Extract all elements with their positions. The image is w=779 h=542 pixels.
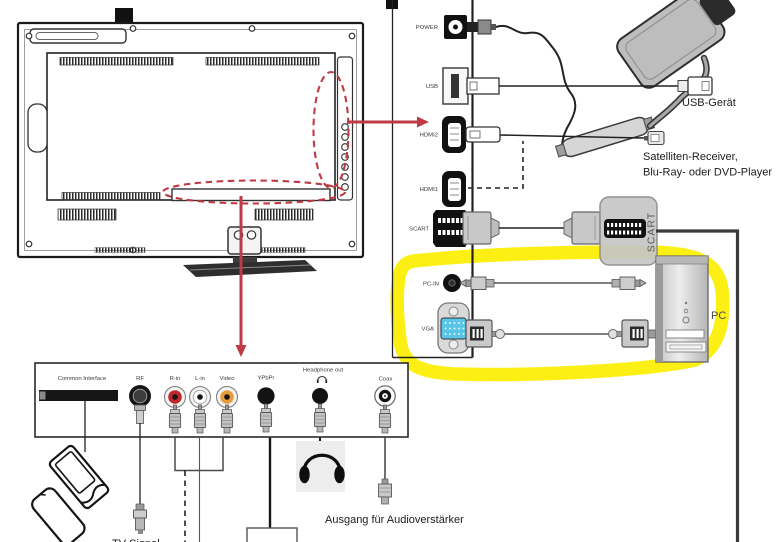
- bottom-port-panel: Common Interface RF R-in L-in Video YPbP…: [35, 363, 408, 437]
- scart-adapter-label: SCART: [646, 212, 658, 252]
- power-port: [444, 15, 467, 39]
- component-device-box: [247, 528, 297, 542]
- hdmi-source-caption-line2: Blu-Ray- oder DVD-Player: [643, 167, 772, 179]
- hdmi1-port: [442, 171, 466, 207]
- bottom-connector-recess: [172, 189, 330, 201]
- speaker-grille: [58, 209, 116, 220]
- vent-strip: [255, 248, 305, 253]
- coax-cable-plug: [379, 479, 392, 504]
- tv-back-panel: [47, 53, 335, 200]
- r-in-label: R-in: [170, 376, 181, 382]
- ypbpr-port: [257, 387, 274, 404]
- usb-port-label: USB: [426, 84, 438, 90]
- common-interface-slot: [39, 390, 118, 401]
- tv-stand: [183, 257, 317, 277]
- coax-port: [375, 386, 395, 406]
- usb-connection: [467, 77, 712, 95]
- l-in-port: [190, 387, 211, 408]
- scart-port-label: SCART: [409, 227, 429, 233]
- pc-audio-connection: [460, 277, 646, 290]
- scart-plug: [463, 212, 499, 244]
- hdmi-plug-detail: [470, 131, 480, 138]
- audio-plug-pc-end: [612, 277, 646, 290]
- usb-device-caption: USB-Gerät: [682, 97, 736, 109]
- hdmi2-port-label: HDMI2: [420, 133, 438, 139]
- hdmi2-port: [442, 116, 466, 153]
- rf-label: RF: [136, 376, 144, 382]
- mount-tab: [115, 8, 133, 24]
- vent-grille: [60, 58, 173, 66]
- pc-tower: [656, 256, 708, 362]
- video-port: [217, 387, 238, 408]
- common-interface-label: Common Interface: [58, 376, 107, 382]
- scart-adapter-plug: [564, 212, 600, 244]
- speaker-grille: [255, 209, 313, 220]
- vent-strip: [95, 248, 145, 253]
- l-in-label: L-in: [195, 376, 205, 382]
- ypbpr-label: YPbPr: [257, 376, 274, 382]
- vga-connection: [466, 320, 657, 347]
- vga-port: [438, 303, 469, 353]
- tv-handle: [30, 29, 126, 43]
- power-port-label: POWER: [416, 25, 438, 31]
- stand-mount: [228, 227, 261, 254]
- pc-caption: PC: [711, 310, 726, 322]
- tv-connection-diagram: POWER USB HDMI2 HDMI1 SCART PC-IN VGA: [0, 0, 779, 542]
- side-cover: [28, 104, 47, 152]
- hdmi1-dashed-link: [468, 141, 523, 188]
- vent-grille: [62, 193, 160, 201]
- scart-connector-icon: [604, 219, 646, 238]
- vent-grille: [206, 58, 319, 66]
- headphones: [296, 441, 345, 492]
- rf-cable-plug: [134, 504, 147, 534]
- vga-plug: [466, 320, 505, 347]
- pc-in-port-label: PC-IN: [423, 282, 439, 288]
- power-plug: [467, 20, 496, 34]
- scart-adapter-box: SCART: [600, 197, 658, 265]
- hdmi1-port-label: HDMI1: [420, 187, 438, 193]
- tv-rear-view: [18, 8, 363, 277]
- audio-plug: [460, 277, 494, 290]
- drive-bay: [666, 330, 704, 338]
- hdmi-device-connector: [644, 132, 664, 145]
- pc-in-port: [443, 274, 461, 292]
- headphone-out-label: Headphone out: [303, 368, 344, 374]
- usb-port: [443, 68, 468, 104]
- diagram-artwork: POWER USB HDMI2 HDMI1 SCART PC-IN VGA: [0, 0, 779, 542]
- headphone-port: [312, 388, 328, 404]
- vga-plug-pc-end: [609, 320, 658, 347]
- coax-label: Coax: [379, 377, 393, 383]
- audio-amp-caption: Ausgang für Audioverstärker: [325, 514, 464, 526]
- r-in-port: [165, 387, 186, 408]
- hdmi-source-caption-line1: Satelliten-Receiver,: [643, 151, 738, 163]
- video-label: Video: [220, 376, 236, 382]
- side-port-panel: POWER USB HDMI2 HDMI1 SCART PC-IN VGA: [393, 0, 473, 358]
- tv-signal-caption: TV Signal: [112, 538, 160, 542]
- drive-bay: [666, 342, 706, 352]
- wall-plug: [613, 0, 745, 92]
- vga-port-label: VGA: [422, 327, 435, 333]
- usb-plug-detail: [470, 82, 477, 90]
